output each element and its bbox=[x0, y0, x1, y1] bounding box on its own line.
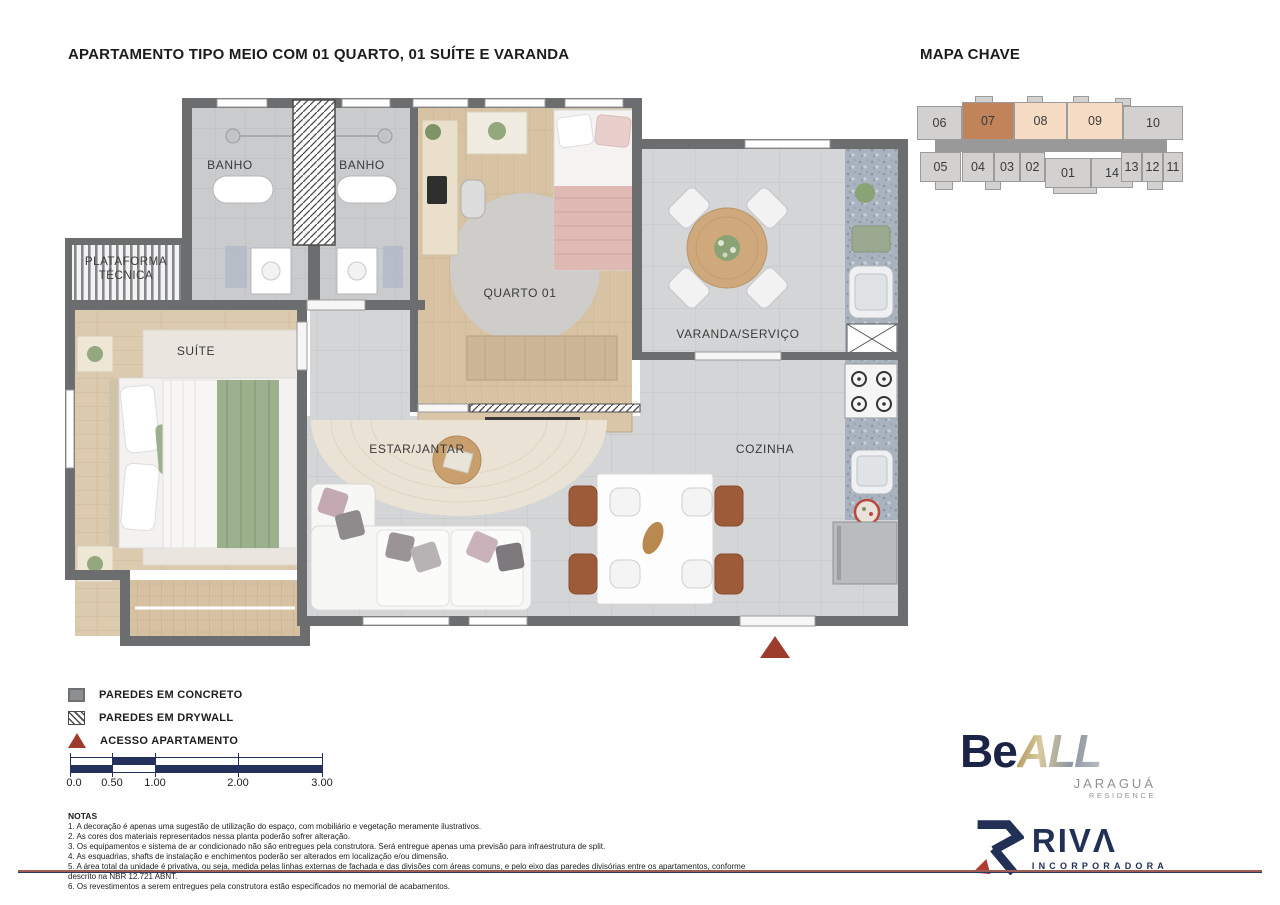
scale-bar-graphic bbox=[70, 757, 323, 773]
keymap-unit-03: 03 bbox=[994, 152, 1020, 182]
keymap-unit-09: 09 bbox=[1067, 102, 1123, 140]
legend-label: ACESSO APARTAMENTO bbox=[100, 735, 238, 747]
keymap-unit-06: 06 bbox=[917, 106, 962, 140]
legend-item-access: ACESSO APARTAMENTO bbox=[68, 729, 368, 752]
scale-label-300: 3.00 bbox=[311, 777, 332, 789]
legend-label: PAREDES EM DRYWALL bbox=[99, 712, 233, 724]
keymap-unit-12: 12 bbox=[1142, 152, 1163, 182]
keymap-corridor bbox=[935, 140, 1167, 152]
room-label-banho-1: BANHO bbox=[190, 158, 270, 172]
room-label-varanda-servico: VARANDA/SERVIÇO bbox=[658, 327, 818, 341]
access-arrow bbox=[760, 636, 790, 658]
beall-logo-jaragua: JARAGUÁ bbox=[960, 776, 1156, 791]
page-title: APARTAMENTO TIPO MEIO COM 01 QUARTO, 01 … bbox=[68, 46, 569, 63]
legend-label: PAREDES EM CONCRETO bbox=[99, 689, 242, 701]
scale-label-200: 2.00 bbox=[227, 777, 248, 789]
room-label-estar-jantar: ESTAR/JANTAR bbox=[357, 442, 477, 456]
beall-logo-residence: RESIDENCE bbox=[960, 791, 1156, 800]
concrete-swatch-icon bbox=[68, 688, 85, 702]
note-line-1: 1. A decoração é apenas uma sugestão de … bbox=[68, 822, 748, 832]
scale-label-050: 0.50 bbox=[101, 777, 122, 789]
keymap-unit-07-highlighted: 07 bbox=[962, 102, 1014, 140]
keymap-unit-05: 05 bbox=[920, 152, 961, 182]
scale-label-0: 0.0 bbox=[66, 777, 81, 789]
room-label-banho-2: BANHO bbox=[322, 158, 402, 172]
notes-title: NOTAS bbox=[68, 811, 748, 821]
key-map: 06 07 08 09 10 05 04 03 02 01 14 13 12 1… bbox=[915, 96, 1190, 200]
drywall-swatch-icon bbox=[68, 711, 85, 725]
keymap-title: MAPA CHAVE bbox=[920, 46, 1020, 63]
room-label-cozinha: COZINHA bbox=[715, 442, 815, 456]
bottom-rule bbox=[18, 870, 1262, 873]
riva-logo-incorporadora: INCORPORADORA bbox=[1032, 861, 1168, 871]
legend-item-drywall: PAREDES EM DRYWALL bbox=[68, 706, 368, 729]
keymap-unit-13: 13 bbox=[1121, 152, 1142, 182]
note-line-6: 6. Os revestimentos a serem entregues pe… bbox=[68, 882, 748, 892]
room-label-plataforma-line1: PLATAFORMA bbox=[67, 256, 185, 268]
legend-item-concrete: PAREDES EM CONCRETO bbox=[68, 683, 368, 706]
legend: PAREDES EM CONCRETO PAREDES EM DRYWALL A… bbox=[68, 683, 368, 752]
access-triangle-icon bbox=[68, 733, 86, 748]
floor-plan-graphic bbox=[65, 98, 910, 668]
beall-logo: BeALL JARAGUÁ RESIDENCE bbox=[960, 728, 1160, 800]
keymap-unit-02: 02 bbox=[1020, 152, 1045, 182]
room-label-suite: SUÍTE bbox=[156, 344, 236, 358]
room-label-quarto-01: QUARTO 01 bbox=[460, 286, 580, 300]
note-line-2: 2. As cores dos materiais representados … bbox=[68, 832, 748, 842]
keymap-unit-04: 04 bbox=[962, 152, 994, 182]
beall-logo-be: Be bbox=[960, 725, 1017, 777]
floor-plan: BANHO BANHO QUARTO 01 VARANDA/SERVIÇO PL… bbox=[65, 98, 910, 668]
keymap-unit-08: 08 bbox=[1014, 102, 1067, 140]
keymap-unit-01: 01 bbox=[1045, 158, 1091, 188]
beall-logo-all: ALL bbox=[1017, 725, 1100, 777]
room-label-plataforma-line2: TÉCNICA bbox=[67, 270, 185, 282]
note-line-4: 4. As esquadrias, shafts de instalação e… bbox=[68, 852, 748, 862]
riva-logo-name: RIVΛ bbox=[1032, 824, 1168, 857]
scale-bar: 0.0 0.50 1.00 2.00 3.00 bbox=[70, 753, 323, 787]
keymap-unit-11: 11 bbox=[1163, 152, 1183, 182]
notes-block: NOTAS 1. A decoração é apenas uma sugest… bbox=[68, 811, 748, 892]
keymap-unit-10: 10 bbox=[1123, 106, 1183, 140]
scale-label-100: 1.00 bbox=[144, 777, 165, 789]
note-line-3: 3. Os equipamentos e sistema de ar condi… bbox=[68, 842, 748, 852]
